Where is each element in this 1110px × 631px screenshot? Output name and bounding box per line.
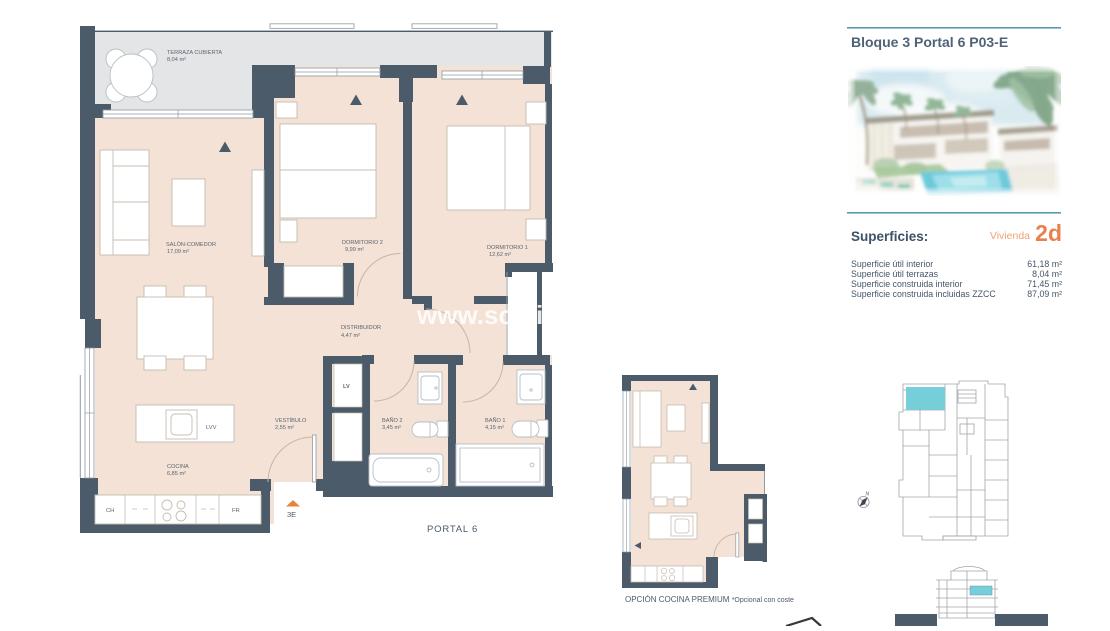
svg-text:DISTRIBUIDOR: DISTRIBUIDOR [341,325,381,331]
svg-text:COCINA: COCINA [167,464,189,470]
svg-text:Superficie útil interior: Superficie útil interior [851,259,933,269]
svg-text:CH: CH [106,508,114,514]
svg-text:3E: 3E [287,510,296,519]
svg-text:LVV: LVV [206,425,217,431]
svg-text:Vivienda: Vivienda [990,230,1030,242]
svg-text:2,55 m²: 2,55 m² [275,425,294,431]
svg-text:12,62 m²: 12,62 m² [489,252,511,258]
svg-text:71,45 m²: 71,45 m² [1027,279,1062,289]
svg-text:SALÓN-COMEDOR: SALÓN-COMEDOR [166,241,216,248]
svg-text:17,09 m²: 17,09 m² [167,249,189,255]
svg-text:2d: 2d [1035,220,1062,246]
svg-text:PORTAL 6: PORTAL 6 [427,524,478,535]
svg-text:BAÑO 1: BAÑO 1 [485,417,506,424]
svg-text:Bloque 3 Portal 6 P03-E: Bloque 3 Portal 6 P03-E [851,34,1008,50]
svg-text:4,15 m²: 4,15 m² [485,425,504,431]
svg-text:6,85 m²: 6,85 m² [167,471,186,477]
svg-text:TERRAZA CUBIERTA: TERRAZA CUBIERTA [167,50,222,56]
svg-text:DORMITORIO 2: DORMITORIO 2 [342,240,383,246]
svg-text:LV: LV [343,384,350,390]
svg-text:N: N [866,492,870,498]
svg-text:61,18 m²: 61,18 m² [1027,259,1062,269]
svg-text:OPCIÓN COCINA PREMIUM *Opciona: OPCIÓN COCINA PREMIUM *Opcional con cost… [625,595,794,604]
svg-text:FR: FR [232,508,240,514]
svg-text:Superficie útil terrazas: Superficie útil terrazas [851,269,939,279]
svg-text:Superficie construida incluida: Superficie construida incluidas ZZCC [851,289,996,299]
svg-text:87,09 m²: 87,09 m² [1027,289,1062,299]
svg-text:Superficie construida interior: Superficie construida interior [851,279,963,289]
svg-text:3,45 m²: 3,45 m² [382,425,401,431]
svg-text:8,04 m²: 8,04 m² [1032,269,1062,279]
svg-text:Superficies:: Superficies: [851,229,928,244]
svg-text:VESTÍBULO: VESTÍBULO [275,417,307,424]
svg-text:DORMITORIO 1: DORMITORIO 1 [487,245,528,251]
svg-text:www.solvia: www.solvia [416,300,558,330]
svg-text:8,04 m²: 8,04 m² [167,57,186,63]
svg-text:BAÑO 2: BAÑO 2 [382,417,403,424]
svg-text:9,99 m²: 9,99 m² [345,247,364,253]
svg-text:4,47 m²: 4,47 m² [341,333,360,339]
